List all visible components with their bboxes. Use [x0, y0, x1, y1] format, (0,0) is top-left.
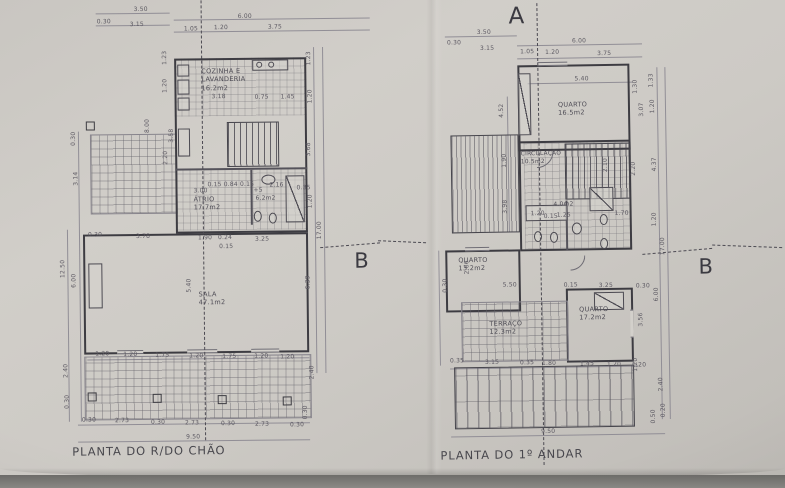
stove-burner-icon — [268, 62, 274, 68]
dimension-label: 2.10 — [603, 158, 609, 172]
dimension-label: 0.50 — [651, 409, 657, 423]
dimension-label: 1.70 — [615, 211, 629, 217]
paper-fold-crease — [426, 0, 442, 474]
room-label-terraco: TERRAÇO 12.3m2 — [489, 319, 522, 336]
dimension-label: 5.50 — [503, 282, 517, 288]
dimension-label: 2.66 — [464, 260, 470, 274]
fridge — [178, 128, 190, 156]
dimension-label: 6.39 — [305, 275, 311, 289]
dimension-label: 3.15 — [480, 46, 494, 52]
dimension-label: 1.20 — [123, 352, 137, 358]
column-marker — [88, 392, 97, 401]
roof-hatch — [450, 134, 520, 233]
room-area: 6.2m2 — [256, 196, 276, 204]
section-line-b — [320, 242, 380, 248]
dimension-label: 0.30 — [636, 283, 650, 289]
window — [465, 247, 489, 251]
dimension-label: 9.50 — [541, 429, 555, 435]
dimension-label: 2.40 — [309, 365, 315, 379]
room-area: 17.2m2 — [579, 313, 608, 322]
dimension-label: 2.16 — [269, 182, 283, 188]
dimension-label: 3.25 — [599, 283, 613, 289]
dimension-label: 5.40 — [574, 76, 588, 82]
dimension-label: 1.05 — [184, 26, 198, 32]
room-label-circulacao: CIRCULAÇÃO 10.5m2 — [521, 151, 562, 167]
dimension-label: 2.40 — [658, 377, 664, 391]
stove-burner-icon — [256, 62, 262, 68]
dimension-label: 0.35 — [450, 358, 464, 364]
dimension-label: 0.15 — [564, 282, 578, 288]
dimension-label: 3.00 — [193, 188, 207, 194]
pergola-hatch — [454, 365, 635, 430]
dimension-label: 1.80 — [542, 361, 556, 367]
dimension-label: 3.75 — [597, 51, 611, 57]
dimension-label: 0.35 — [520, 360, 534, 366]
dimension-label: 0.30 — [65, 395, 71, 409]
room-area: 16.2m2 — [201, 84, 245, 93]
dimension-label: 1.20 — [632, 362, 646, 368]
sink-icon — [572, 222, 582, 234]
dim-extension-line — [174, 18, 370, 21]
dim-extension-line — [313, 47, 317, 373]
floor-plan-ground: B COZINHA E LAVANDERIA 16.2m2 ÁTRIO 17.7… — [56, 0, 411, 474]
dimension-label: 2.73 — [255, 422, 269, 428]
dimension-label: 1.20 — [545, 50, 559, 56]
window — [630, 310, 633, 338]
dimension-label: 1.20 — [307, 89, 313, 103]
dimension-label: +5 — [253, 188, 262, 194]
dimension-label: 0.30 — [221, 421, 235, 427]
kitchen-sink — [177, 64, 189, 76]
room-name: CIRCULAÇÃO — [521, 151, 562, 159]
dimension-label: 3.15 — [485, 360, 499, 366]
dimension-label: 0.20 — [661, 403, 667, 417]
shower-icon — [589, 187, 613, 211]
door-swing-arc — [570, 255, 585, 270]
section-line-b — [712, 245, 782, 249]
dimension-label: 17.00 — [317, 221, 323, 239]
stairwell-void — [517, 73, 531, 135]
dimension-label: 0.30 — [447, 40, 461, 46]
veranda-grid — [84, 354, 312, 420]
table-edge — [0, 475, 785, 488]
dimension-label: 0.35 — [296, 185, 310, 191]
kitchen-appliance — [178, 97, 190, 110]
dim-extension-line — [67, 230, 70, 422]
room-area: 10.5m2 — [521, 158, 562, 166]
room-label-is: 6.2m2 — [256, 196, 276, 204]
dimension-label: 6.00 — [238, 14, 252, 20]
dimension-label: 6.00 — [654, 287, 660, 301]
room-area: 12.3m2 — [489, 328, 522, 337]
dim-extension-line — [322, 47, 326, 373]
dimension-label: 1.20 — [280, 354, 294, 360]
dimension-label: 1.20 — [162, 79, 168, 93]
dimension-label: 1.20 — [189, 353, 203, 359]
patio-grid — [90, 134, 178, 215]
stairs — [227, 122, 279, 168]
room-label-atrio: ÁTRIO 17.7m2 — [194, 195, 221, 212]
dimension-label: 1.20 — [214, 25, 228, 31]
room-name: TERRAÇO — [489, 319, 522, 328]
dimension-label: 6.00 — [71, 274, 77, 288]
dim-extension-line — [517, 56, 642, 59]
dimension-label: 2.20 — [163, 151, 169, 165]
dimension-label: 9.50 — [186, 434, 200, 440]
dimension-label: 3.15 — [130, 22, 144, 28]
bidet-icon — [550, 232, 558, 243]
dimension-label: 2.20 — [631, 162, 637, 176]
plan-title-ground-floor: PLANTA DO R/DO CHÃO — [72, 443, 225, 459]
dimension-label: 3.75 — [268, 24, 282, 30]
floor-plan-first: A B QUARTO 16.5m2 CIRCULAÇÃO 10.5m2 4.0m… — [426, 0, 785, 475]
dimension-label: 4.52 — [499, 104, 505, 118]
section-letter-b: B — [698, 254, 713, 278]
dimension-label: 17.00 — [660, 237, 666, 255]
bidet-icon — [600, 238, 608, 249]
window — [537, 62, 567, 66]
dimension-label: 3.25 — [255, 237, 269, 243]
dimension-label: 1.20 — [650, 99, 656, 113]
shower-icon — [285, 175, 304, 222]
dimension-label: 3.98 — [502, 200, 508, 214]
room-area: 17.7m2 — [194, 204, 221, 213]
dimension-label: 8.00 — [145, 119, 151, 133]
column-marker — [153, 394, 162, 403]
dimension-label: 1.75 — [222, 354, 236, 360]
dimension-label: 0.30 — [151, 420, 165, 426]
dimension-label: 3.58 — [169, 129, 175, 143]
dimension-label: 1.20 — [95, 351, 109, 357]
room-area: 4.0m2 — [553, 202, 573, 210]
dimension-label: 0.30 — [71, 132, 77, 146]
room-name: LAVANDERIA — [201, 75, 245, 84]
dim-extension-line — [96, 13, 170, 15]
room-label-cozinha: COZINHA E LAVANDERIA 16.2m2 — [201, 67, 245, 93]
dimension-label: 3.78 — [136, 234, 150, 240]
dimension-label: 0.75 — [255, 95, 269, 101]
column-marker — [283, 396, 292, 405]
dimension-label: 1.20 — [607, 362, 621, 368]
room-name: SALA — [199, 290, 226, 299]
dimension-label: 1.20 — [254, 354, 268, 360]
dimension-label: 1.45 — [281, 94, 295, 100]
dimension-label: 0.15 0.84 0.15 — [207, 182, 254, 188]
dimension-label: 3.68 — [306, 142, 312, 156]
dimension-label: 1.90 — [502, 154, 508, 168]
dimension-label: 12.50 — [60, 260, 66, 278]
dimension-label: 0.24 — [218, 235, 232, 241]
dimension-label: 0.30 — [82, 417, 96, 423]
dimension-label: 1.20 — [652, 212, 658, 226]
room-label-sala: SALA 47.1m2 — [199, 290, 226, 307]
section-letter-b: B — [354, 249, 369, 273]
room-label-quarto3: QUARTO 17.2m2 — [579, 305, 609, 322]
dimension-label: 2.73 — [115, 418, 129, 424]
dimension-label: 1.45 — [580, 361, 594, 367]
fireplace — [88, 263, 102, 308]
dimension-label: 1.23 — [306, 51, 312, 65]
wall-sala — [83, 232, 309, 354]
dimension-label: 5.40 — [186, 278, 192, 292]
dim-extension-line — [451, 433, 665, 437]
dimension-label: 6.00 — [572, 38, 586, 44]
column-marker — [86, 121, 95, 130]
dimension-label: 1.90 — [198, 235, 212, 241]
dimension-label: 1.33 — [648, 73, 654, 87]
section-letter-a: A — [508, 3, 524, 29]
dimension-label: 1.05 — [520, 49, 534, 55]
column-marker — [218, 395, 227, 404]
dimension-label: 0.30 — [290, 422, 304, 428]
toilet-icon — [600, 214, 608, 225]
photo-of-architectural-drawing: B COZINHA E LAVANDERIA 16.2m2 ÁTRIO 17.7… — [0, 0, 785, 488]
dimension-label: 1.23 — [162, 51, 168, 65]
dimension-label: 0.30 — [97, 19, 111, 25]
dimension-label: 2.73 — [185, 420, 199, 426]
plan-title-first-floor: PLANTA DO 1º ANDAR — [440, 446, 583, 462]
room-label-quarto1: QUARTO 16.5m2 — [558, 100, 588, 117]
section-line-b — [378, 240, 426, 243]
dimension-label: 0.30 — [303, 405, 309, 419]
dimension-label: 3.50 — [477, 30, 491, 36]
kitchen-appliance — [177, 79, 189, 94]
dimension-label: 0.30 — [88, 232, 102, 238]
room-name: ÁTRIO — [194, 195, 221, 204]
dimension-label: 3.07 — [639, 102, 645, 116]
dimension-label: 2.40 — [63, 364, 69, 378]
dimension-label: 0.30 — [443, 279, 449, 293]
dimension-label: 0.15 — [219, 244, 233, 250]
dimension-label: 3.18 — [212, 94, 226, 100]
dimension-label: 1.75 — [155, 353, 169, 359]
room-area: 16.5m2 — [558, 109, 587, 118]
room-label-is: 4.0m2 — [553, 202, 573, 210]
dimension-label: 1.30 — [633, 79, 639, 93]
bidet-icon — [269, 213, 277, 224]
dimension-label: 4.37 — [652, 157, 658, 171]
dimension-label: 3.14 — [73, 172, 79, 186]
dimension-label: 1.20 — [308, 194, 314, 208]
toilet-icon — [254, 211, 262, 222]
dimension-label: 1.25 — [557, 213, 571, 219]
room-area: 47.1m2 — [199, 299, 226, 308]
dimension-label: 3.50 — [134, 7, 148, 13]
dimension-label: 3.56 — [638, 312, 644, 326]
